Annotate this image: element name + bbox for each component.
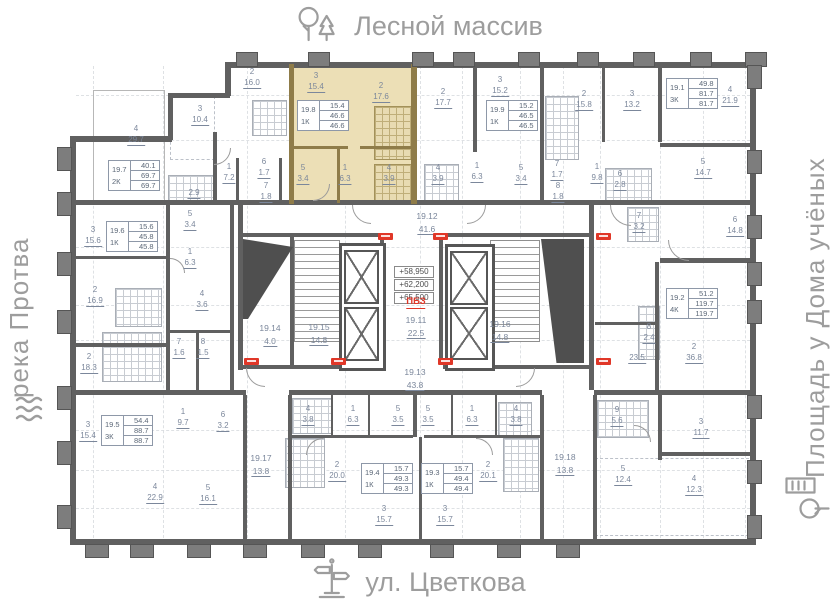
room-label: 43.8 (301, 405, 314, 426)
room-label: 53.4 (514, 164, 527, 185)
apartment-number: 19.5 (105, 421, 120, 429)
room-label: 95.6 (610, 406, 623, 427)
room-number: 1 (338, 164, 351, 172)
room-number: 1 (465, 405, 478, 413)
room-area: 3.5 (421, 416, 434, 426)
room-label: 16.3 (338, 164, 351, 185)
room-label: 43.9 (431, 164, 444, 185)
room-label: 63.2 (216, 411, 229, 432)
apartment-area-value: 69.7 (131, 181, 159, 190)
room-label: 43.6 (195, 290, 208, 311)
apartment-info-box: 19.61К15.645.845.8 (106, 221, 158, 252)
apartment-number: 19.7 (112, 166, 127, 174)
room-area: 16.1 (199, 495, 217, 505)
room-area: 16.0 (243, 79, 261, 89)
room-number: 9 (610, 406, 623, 414)
room-number: 6 (257, 158, 270, 166)
room-area: 3.9 (382, 175, 395, 185)
room-label: 421.9 (721, 86, 739, 107)
room-number: 1 (183, 248, 196, 256)
room-label: 53.5 (421, 405, 434, 426)
room-area: 6.3 (183, 259, 196, 269)
corridor-number: 19.15 (308, 323, 329, 332)
room-number: 3 (375, 505, 393, 513)
apartment-number: 19.4 (365, 469, 380, 477)
apartment-area-value: 15.7 (384, 464, 412, 474)
room-area: 12.4 (614, 476, 632, 486)
room-number: 6 (613, 170, 626, 178)
room-label: 81.5 (196, 338, 209, 359)
room-number: 8 (551, 182, 564, 190)
apartment-area-value: 15.4 (320, 101, 348, 111)
room-area: 20.0 (328, 472, 346, 482)
room-area: 13.2 (623, 101, 641, 111)
apartment-id-cell: 19.41К (362, 464, 384, 493)
room-label: 23.5 (628, 351, 646, 364)
room-label: 512.4 (614, 465, 632, 486)
room-label: 62.8 (613, 170, 626, 191)
room-area: 2.8 (613, 181, 626, 191)
room-label: 71.7 (550, 160, 563, 181)
room-label: 217.7 (434, 88, 452, 109)
apartment-areas: 51.2119.7119.7 (689, 289, 717, 318)
apartment-areas: 15.749.449.4 (444, 464, 472, 493)
room-label: 217.6 (372, 82, 390, 103)
room-area: 12.3 (685, 486, 703, 496)
room-area: 1.6 (172, 349, 185, 359)
apartment-area-value: 51.2 (689, 289, 717, 299)
room-area: 1.7 (257, 169, 270, 179)
corridor-number: 19.18 (554, 453, 575, 462)
room-number: 2 (86, 286, 104, 294)
apartment-area-value: 15.7 (444, 464, 472, 474)
apartment-area-value: 46.5 (509, 121, 537, 130)
room-area: 15.7 (375, 516, 393, 526)
room-label: 315.7 (375, 505, 393, 526)
fire-hydrant-badge (596, 358, 611, 365)
room-area: 3.4 (296, 175, 309, 185)
corridor-area: 13.8 (252, 467, 271, 478)
corridor-label: 19.1343.8 (404, 368, 425, 391)
room-label: 220.1 (479, 461, 497, 482)
apartment-type: 3К (670, 96, 685, 104)
room-label: 315.2 (491, 76, 509, 97)
room-label: 514.7 (694, 158, 712, 179)
room-area: 5.6 (610, 417, 623, 427)
room-area: 17.6 (372, 93, 390, 103)
room-label: 71.6 (172, 338, 185, 359)
room-label: 614.8 (726, 216, 744, 237)
room-label: 43.9 (382, 164, 395, 185)
corridor-label: 19.1514.8 (308, 323, 329, 346)
corridor-number: 19.11 (406, 316, 427, 325)
apartment-area-value: 54.4 (124, 416, 152, 426)
room-area: 15.4 (307, 83, 325, 93)
room-number: 4 (146, 483, 164, 491)
apartment-area-value: 46.6 (320, 111, 348, 121)
room-label: 315.7 (436, 505, 454, 526)
fire-hydrant-badge (438, 358, 453, 365)
room-area: 6.3 (346, 416, 359, 426)
room-area: 9.8 (590, 174, 603, 184)
apartment-id-cell: 19.81К (298, 101, 320, 130)
apartment-area-value: 119.7 (689, 299, 717, 309)
apartment-area-value: 49.3 (384, 484, 412, 493)
room-number: 4 (382, 164, 395, 172)
room-area: 6.3 (470, 173, 483, 183)
room-area: 15.6 (84, 237, 102, 247)
room-label: 16.3 (470, 162, 483, 183)
room-number: 5 (199, 484, 217, 492)
room-area: 1.8 (259, 193, 272, 203)
room-label: 73.2 (632, 212, 645, 233)
corridor-area: 13.8 (556, 466, 575, 477)
room-number: 1 (470, 162, 483, 170)
room-area: 15.2 (491, 87, 509, 97)
room-number: 7 (259, 182, 272, 190)
room-number: 2 (328, 461, 346, 469)
room-label: 216.9 (86, 286, 104, 307)
room-area: 23.5 (628, 354, 646, 364)
room-label: 218.3 (80, 353, 98, 374)
apartment-area-value: 45.8 (129, 232, 157, 242)
room-number: 3 (79, 421, 97, 429)
room-label: 81.8 (551, 182, 564, 203)
room-number: 7 (550, 160, 563, 168)
apartment-areas: 15.645.845.8 (129, 222, 157, 251)
apartment-area-value: 119.7 (689, 309, 717, 318)
apartment-id-cell: 19.53К (102, 416, 124, 445)
room-number: 4 (195, 290, 208, 298)
room-area: 3.6 (195, 301, 208, 311)
room-area: 36.8 (685, 354, 703, 364)
room-label: 315.4 (79, 421, 97, 442)
room-number: 2 (479, 461, 497, 469)
room-label: 53.4 (296, 164, 309, 185)
room-area: 9.7 (176, 419, 189, 429)
room-area: 3.2 (216, 422, 229, 432)
apartment-area-value: 46.6 (320, 121, 348, 130)
room-area: 3.4 (514, 175, 527, 185)
room-number: 3 (436, 505, 454, 513)
apartment-area-value: 40.1 (131, 161, 159, 171)
apartment-area-value: 49.8 (689, 79, 717, 89)
room-area: 1.8 (551, 193, 564, 203)
room-number: 4 (721, 86, 739, 94)
apartment-area-value: 45.8 (129, 242, 157, 251)
apartment-info-box: 19.91К15.246.546.5 (486, 100, 538, 131)
room-number: 5 (391, 405, 404, 413)
room-number: 4 (127, 125, 145, 133)
apartment-area-value: 49.4 (444, 484, 472, 493)
fire-hydrant-badge (244, 358, 259, 365)
room-area: 21.9 (721, 97, 739, 107)
apartment-number: 19.9 (490, 106, 505, 114)
apartment-info-box: 19.41К15.749.349.3 (361, 463, 413, 494)
room-area: 15.4 (79, 432, 97, 442)
room-label: 313.2 (623, 90, 641, 111)
apartment-area-value: 69.7 (131, 171, 159, 181)
room-label: 16.3 (465, 405, 478, 426)
room-number: 1 (176, 408, 189, 416)
room-label: 315.6 (84, 226, 102, 247)
room-area: 11.7 (693, 429, 710, 439)
corridor-label: 19.1813.8 (554, 453, 575, 476)
apartment-number: 19.2 (670, 294, 685, 302)
room-label: 236.8 (685, 343, 703, 364)
apartment-type: 3К (105, 433, 120, 441)
room-number: 3 (693, 418, 710, 426)
room-area: 1.5 (196, 349, 209, 359)
room-area: 6.3 (338, 175, 351, 185)
room-number: 8 (642, 323, 655, 331)
room-number: 2 (575, 90, 593, 98)
corridor-label: 19.1614.8 (489, 320, 510, 343)
apartment-areas: 15.749.349.3 (384, 464, 412, 493)
apartment-type: 4К (670, 306, 685, 314)
apartment-area-value: 49.3 (384, 474, 412, 484)
apartment-number: 19.8 (301, 106, 316, 114)
room-label: 429.7 (127, 125, 145, 146)
room-label: 53.4 (183, 210, 196, 231)
room-number: 2 (80, 353, 98, 361)
room-label: 412.3 (685, 475, 703, 496)
room-label: 215.8 (575, 90, 593, 111)
apartment-areas: 15.246.546.5 (509, 101, 537, 130)
room-area: 18.3 (80, 364, 98, 374)
room-label: 16.3 (346, 405, 359, 426)
room-area: 14.8 (726, 227, 744, 237)
apartment-info-box: 19.81К15.446.646.6 (297, 100, 349, 131)
apartment-type: 1К (110, 239, 125, 247)
room-label: 220.0 (328, 461, 346, 482)
room-area: 15.7 (436, 516, 454, 526)
room-area: 3.5 (391, 416, 404, 426)
room-number: 2 (434, 88, 452, 96)
apartment-type: 2К (112, 178, 127, 186)
room-label: 315.4 (307, 72, 325, 93)
apartment-areas: 49.881.781.7 (689, 79, 717, 108)
room-label: 71.8 (259, 182, 272, 203)
room-number: 8 (196, 338, 209, 346)
apartment-number: 19.1 (670, 84, 685, 92)
apartment-area-value: 88.7 (124, 436, 152, 445)
corridor-area: 22.5 (407, 329, 426, 340)
room-area: 16.9 (86, 297, 104, 307)
room-area: 3.8 (301, 416, 314, 426)
room-number: 4 (509, 405, 522, 413)
room-area: 3.2 (632, 223, 645, 233)
apartment-id-cell: 19.31К (422, 464, 444, 493)
apartment-id-cell: 19.91К (487, 101, 509, 130)
room-area: 7.2 (222, 174, 235, 184)
room-area: 29.7 (127, 136, 145, 146)
corridor-number: 19.16 (489, 320, 510, 329)
room-number: 3 (307, 72, 325, 80)
room-area: 6.3 (465, 416, 478, 426)
room-label: 2.9 (187, 186, 200, 199)
fire-hydrant-badge (433, 233, 448, 240)
apartment-id-cell: 19.24К (667, 289, 689, 318)
apartment-id-cell: 19.72К (109, 161, 131, 190)
room-number: 3 (191, 105, 209, 113)
room-number: 1 (222, 163, 235, 171)
room-label: 53.5 (391, 405, 404, 426)
room-area: 3.4 (183, 221, 196, 231)
apartment-info-box: 19.53К54.488.788.7 (101, 415, 153, 446)
corridor-label: 19.144.0 (259, 324, 280, 347)
room-number: 3 (84, 226, 102, 234)
fire-hydrant-badge (596, 233, 611, 240)
room-number: 4 (301, 405, 314, 413)
apartment-info-box: 19.24К51.2119.7119.7 (666, 288, 718, 319)
apartment-number: 19.3 (425, 469, 440, 477)
room-number: 1 (346, 405, 359, 413)
apartment-area-value: 15.6 (129, 222, 157, 232)
apartment-area-value: 49.4 (444, 474, 472, 484)
room-label: 311.7 (693, 418, 710, 439)
fire-hydrant-badge (331, 358, 346, 365)
room-number: 3 (623, 90, 641, 98)
room-area: 22.9 (146, 494, 164, 504)
corridor-area: 14.8 (310, 336, 329, 347)
room-label: 43.8 (509, 405, 522, 426)
room-number: 2 (685, 343, 703, 351)
apartment-area-value: 88.7 (124, 426, 152, 436)
apartment-areas: 54.488.788.7 (124, 416, 152, 445)
apartment-id-cell: 19.13К (667, 79, 689, 108)
room-area: 10.4 (191, 116, 209, 126)
room-label: 17.2 (222, 163, 235, 184)
room-number: 5 (694, 158, 712, 166)
room-number: 2 (243, 68, 261, 76)
room-number: 5 (421, 405, 434, 413)
room-number: 5 (296, 164, 309, 172)
apartment-type: 1К (425, 481, 440, 489)
room-area: 1.7 (550, 171, 563, 181)
room-area: 3.9 (431, 175, 444, 185)
room-area: 20.1 (479, 472, 497, 482)
corridor-number: 19.13 (404, 368, 425, 377)
apartment-type: 1К (490, 118, 505, 126)
room-number: 2 (372, 82, 390, 90)
apartment-area-value: 46.5 (509, 111, 537, 121)
corridor-number: 19.12 (416, 212, 437, 221)
corridor-area: 4.0 (263, 337, 277, 348)
room-label: 422.9 (146, 483, 164, 504)
corridor-number: 19.17 (250, 454, 271, 463)
room-number: 6 (726, 216, 744, 224)
apartment-area-value: 15.2 (509, 101, 537, 111)
apartment-areas: 40.169.769.7 (131, 161, 159, 190)
labels-layer: 216.0315.4217.6217.7315.2215.8313.2421.9… (0, 0, 837, 612)
apartment-number: 19.6 (110, 227, 125, 235)
room-number: 1 (590, 163, 603, 171)
apartment-area-value: 81.7 (689, 89, 717, 99)
floorplan: +58,950 +62,200 +65,500 ПБЗ 216.0315.421… (0, 0, 837, 612)
room-number: 6 (216, 411, 229, 419)
room-number: 5 (614, 465, 632, 473)
corridor-area: 14.8 (491, 333, 510, 344)
room-label: 61.7 (257, 158, 270, 179)
apartment-area-value: 81.7 (689, 99, 717, 108)
room-number: 4 (431, 164, 444, 172)
room-number: 7 (632, 212, 645, 220)
corridor-label: 19.1122.5 (406, 316, 427, 339)
room-number: 4 (685, 475, 703, 483)
corridor-number: 19.14 (259, 324, 280, 333)
room-label: 16.3 (183, 248, 196, 269)
apartment-info-box: 19.72К40.169.769.7 (108, 160, 160, 191)
fire-hydrant-badge (378, 233, 393, 240)
corridor-area: 43.8 (406, 381, 425, 392)
room-label: 310.4 (191, 105, 209, 126)
room-label: 19.8 (590, 163, 603, 184)
room-number: 7 (172, 338, 185, 346)
room-area: 15.8 (575, 101, 593, 111)
apartment-info-box: 19.31К15.749.449.4 (421, 463, 473, 494)
room-label: 216.0 (243, 68, 261, 89)
room-number: 5 (183, 210, 196, 218)
room-number: 5 (514, 164, 527, 172)
room-area: 17.7 (434, 99, 452, 109)
room-number: 3 (491, 76, 509, 84)
apartment-type: 1К (301, 118, 316, 126)
room-label: 82.4 (642, 323, 655, 344)
room-area: 3.8 (509, 416, 522, 426)
room-area: 2.9 (187, 189, 200, 199)
room-label: 516.1 (199, 484, 217, 505)
apartment-id-cell: 19.61К (107, 222, 129, 251)
apartment-info-box: 19.13К49.881.781.7 (666, 78, 718, 109)
room-area: 14.7 (694, 169, 712, 179)
corridor-label: 19.1713.8 (250, 454, 271, 477)
corridor-label: 19.1241.6 (416, 212, 437, 235)
room-area: 2.4 (642, 334, 655, 344)
apartment-type: 1К (365, 481, 380, 489)
apartment-areas: 15.446.646.6 (320, 101, 348, 130)
room-label: 19.7 (176, 408, 189, 429)
